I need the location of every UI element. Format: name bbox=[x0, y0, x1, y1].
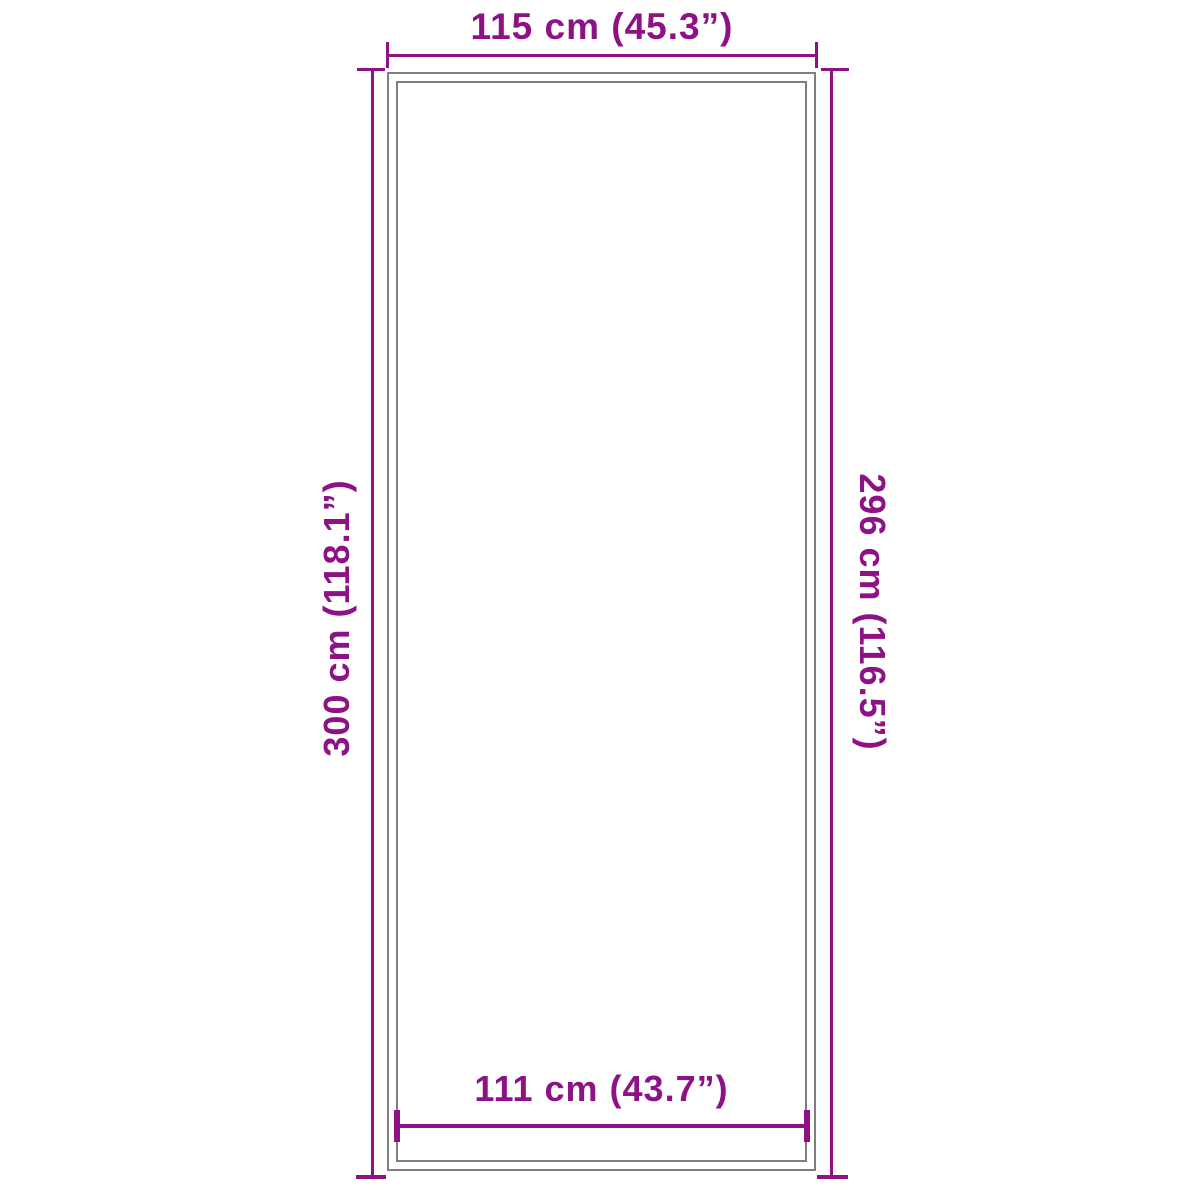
right-dimension-line bbox=[830, 69, 833, 1178]
left-dimension-line bbox=[371, 69, 374, 1178]
bottom-dimension-line bbox=[397, 1124, 807, 1128]
top-dimension-label: 115 cm (45.3”) bbox=[387, 6, 817, 48]
bottom-dimension-left-tick bbox=[394, 1110, 400, 1142]
dimension-diagram: 115 cm (45.3”) 300 cm (118.1”) 296 cm (1… bbox=[0, 0, 1200, 1200]
bottom-dimension-right-tick bbox=[804, 1110, 810, 1142]
right-dimension-bottom-tick bbox=[817, 1175, 848, 1179]
left-dimension-bottom-tick bbox=[356, 1175, 386, 1179]
bottom-dimension-label: 111 cm (43.7”) bbox=[396, 1068, 807, 1110]
left-dimension-top-tick bbox=[357, 68, 385, 71]
top-dimension-line bbox=[387, 54, 817, 57]
right-dimension-label: 296 cm (116.5”) bbox=[851, 473, 893, 750]
right-dimension-top-tick bbox=[821, 68, 849, 71]
left-dimension-label: 300 cm (118.1”) bbox=[316, 479, 358, 756]
mat-inner-outline bbox=[396, 81, 807, 1162]
